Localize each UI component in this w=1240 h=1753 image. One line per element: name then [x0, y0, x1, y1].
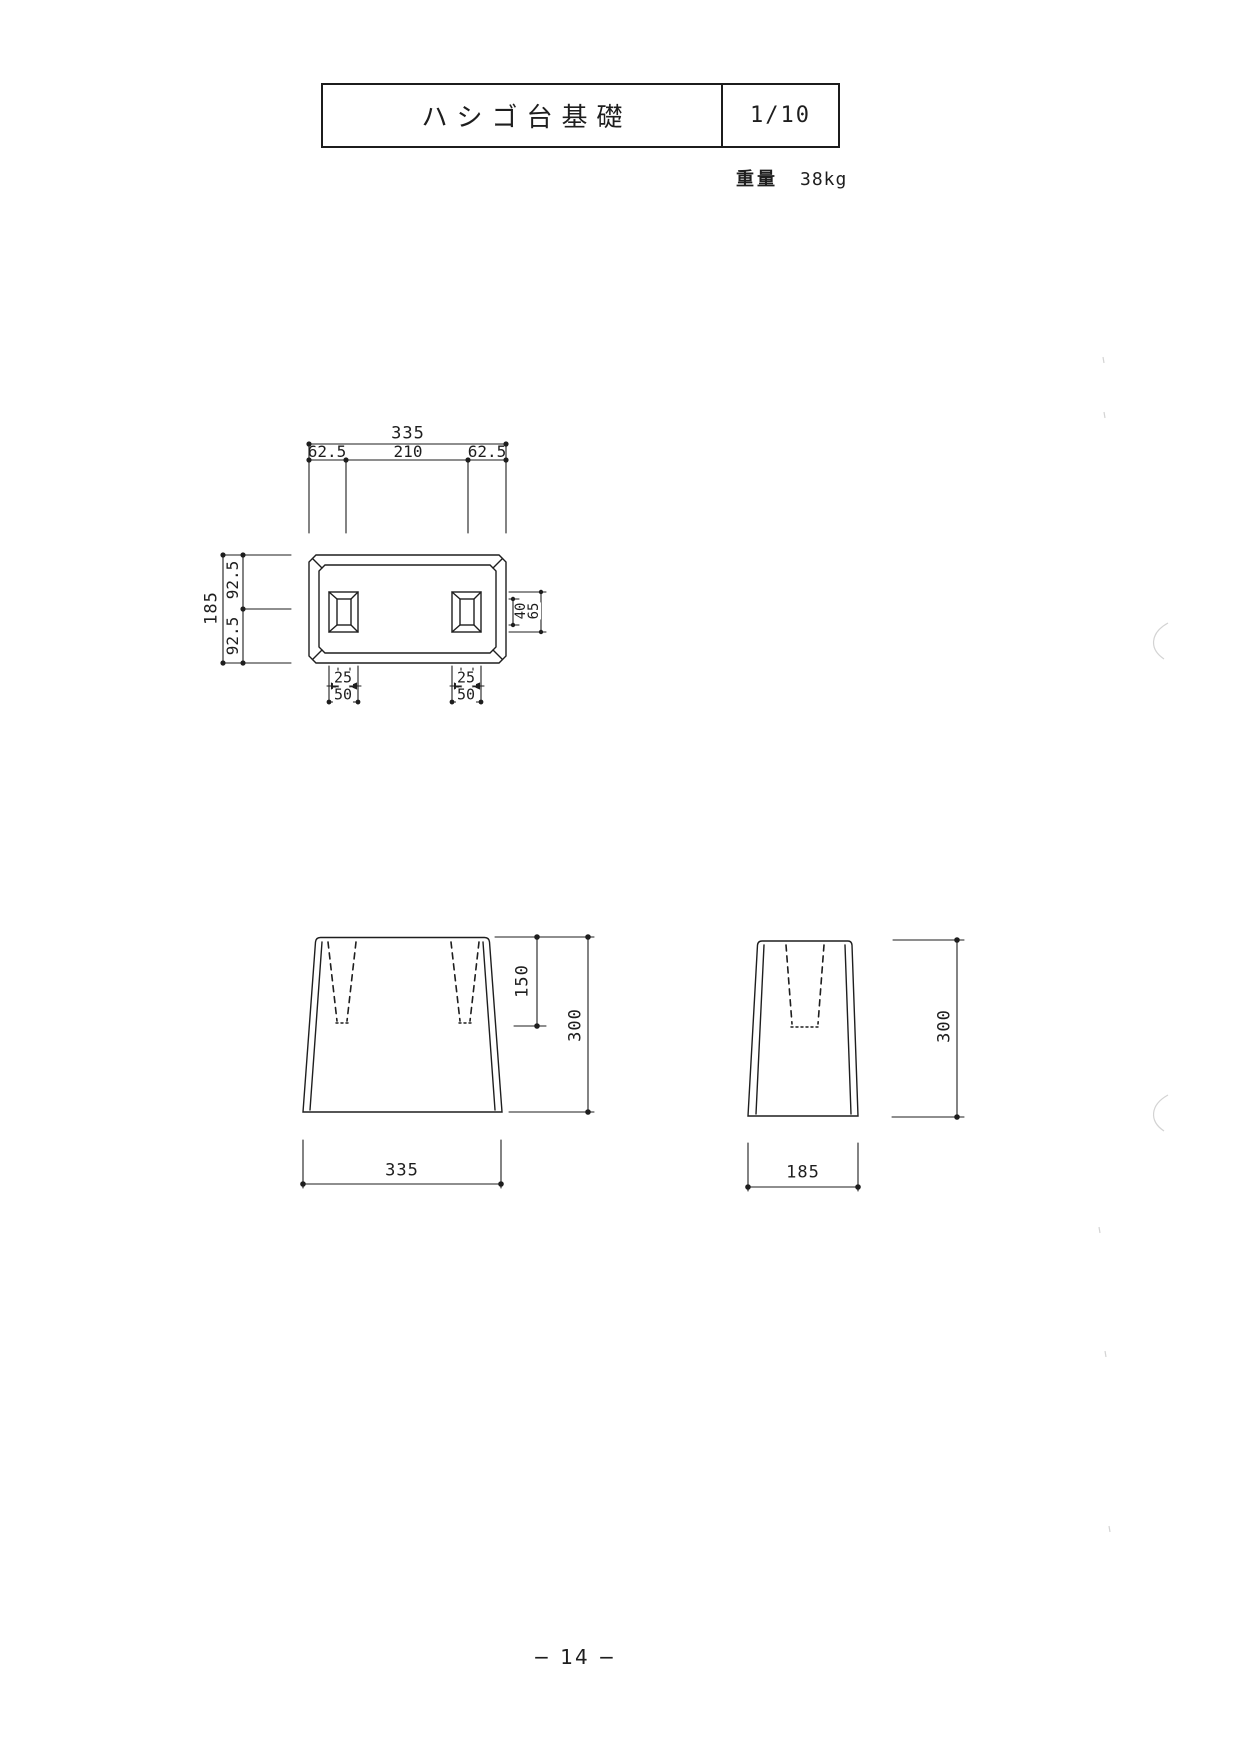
- drawing-linework: [0, 0, 1240, 1753]
- side-view-outline: [748, 941, 858, 1116]
- dim-side-width: 185: [786, 1165, 820, 1182]
- dim-plan-total-width: 335: [391, 426, 425, 443]
- dim-plan-front-half: 92.5: [225, 617, 241, 656]
- dim-plan-right-offset: 62.5: [468, 444, 507, 460]
- dim-plan-right-hole-outer-width: 50: [456, 688, 476, 703]
- side-view-hidden-hole: [786, 945, 824, 1024]
- plan-right-hole: [452, 592, 481, 632]
- dim-side-height: 300: [937, 1009, 954, 1043]
- dim-plan-center-span: 210: [394, 444, 423, 460]
- front-view-dimensions: [303, 937, 594, 1188]
- dimension-dots: [220, 441, 959, 1189]
- dim-plan-left-hole-inner-width: 25: [333, 671, 353, 686]
- front-view-hidden-holes: [328, 942, 479, 1021]
- plan-frame: [309, 555, 506, 663]
- dim-plan-left-offset: 62.5: [308, 444, 347, 460]
- page-number: − 14 −: [533, 1645, 617, 1669]
- dim-plan-left-hole-outer-width: 50: [333, 688, 353, 703]
- front-view-outline: [303, 938, 502, 1113]
- dim-front-width: 335: [385, 1163, 419, 1180]
- dim-front-hole-depth: 150: [515, 964, 532, 998]
- dim-plan-rear-half: 92.5: [225, 561, 241, 600]
- dim-front-height: 300: [568, 1008, 585, 1042]
- dim-plan-hole-outer-height: 65: [527, 603, 541, 620]
- dim-plan-right-hole-inner-width: 25: [456, 671, 476, 686]
- drawing-sheet: ハシゴ台基礎 1/10 重量 38kg: [0, 0, 1240, 1753]
- dim-plan-total-depth: 185: [204, 591, 221, 625]
- plan-left-hole: [329, 592, 358, 632]
- scan-artifacts: [1099, 357, 1168, 1532]
